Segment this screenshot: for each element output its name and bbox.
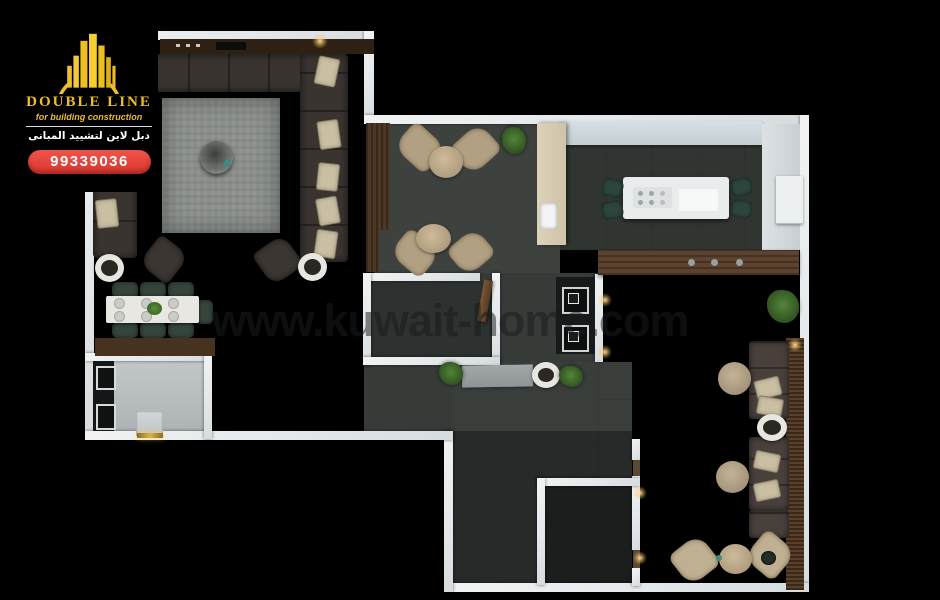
potted-plant [502, 127, 526, 154]
stove-top [633, 187, 672, 208]
entry-table [532, 362, 560, 388]
place-setting [168, 298, 179, 309]
pillow [95, 198, 120, 229]
burner-dots [638, 191, 643, 196]
sink [96, 366, 116, 390]
coffee-table [200, 141, 233, 174]
side-table [95, 254, 124, 282]
tv-console [160, 39, 374, 54]
lounge-table [416, 224, 451, 253]
wall [632, 439, 640, 460]
potted-plant [559, 366, 583, 387]
bar-stool [730, 198, 754, 219]
dining-chair [140, 322, 166, 338]
wall [204, 353, 212, 439]
dining-chair [168, 322, 194, 338]
wall [632, 568, 640, 586]
table-centerpiece [147, 302, 162, 315]
majlis-round-table [719, 544, 752, 574]
watermark-text: www.kuwait-home.com [200, 295, 700, 347]
wood-partition-low [366, 230, 379, 272]
ceiling-light [312, 33, 328, 49]
company-name: DOUBLE LINE [24, 94, 154, 111]
pouf [716, 461, 749, 493]
door-mat [137, 433, 163, 438]
window-counter [560, 121, 762, 145]
potted-plant [767, 290, 799, 323]
decor-bottle [224, 160, 231, 167]
side-table [298, 253, 327, 281]
logo-divider [26, 126, 152, 127]
wood-partition [366, 123, 390, 230]
counter-sink [540, 203, 557, 229]
place-setting [168, 311, 179, 322]
serving-tray [761, 551, 776, 565]
logo-panel: DOUBLE LINE for building construction دب… [24, 6, 154, 142]
hallway-shadow [215, 340, 364, 431]
company-tagline: for building construction [24, 112, 154, 122]
wall [537, 478, 545, 585]
company-name-arabic: دبل لاين لتشييد المبانى [24, 130, 154, 142]
place-setting [114, 311, 125, 322]
pillow [315, 195, 342, 226]
wall-light [633, 551, 647, 565]
potted-plant [439, 362, 463, 385]
building-skyline-icon [50, 22, 128, 94]
pouf [718, 362, 751, 395]
place-setting [114, 298, 125, 309]
lounge-table [429, 146, 463, 178]
sideboard [95, 338, 215, 356]
phone-badge: 99339036 [28, 150, 151, 174]
wall-light [788, 338, 802, 352]
divider-counter [598, 250, 799, 275]
wall [537, 478, 640, 486]
island-board [679, 189, 718, 211]
floor-mat [462, 364, 533, 387]
pillow [316, 119, 342, 151]
tv-screen [216, 42, 246, 50]
dining-chair [112, 322, 138, 338]
sink [96, 404, 116, 430]
sofa-side-table [757, 414, 787, 441]
decor-cup [716, 555, 722, 561]
pillow [316, 162, 341, 192]
fridge [776, 176, 803, 224]
wall-light [633, 486, 647, 500]
wall-light [598, 345, 612, 359]
wall [363, 357, 500, 365]
dining-table [106, 296, 199, 323]
inner-room-floor [545, 486, 632, 583]
door-threshold [633, 460, 640, 476]
counter-knobs [688, 259, 695, 266]
wall [444, 431, 453, 592]
wall [444, 583, 809, 592]
floorplan-render: www.kuwait-home.com DOUBLE LINE for buil… [0, 0, 940, 600]
console-decor [176, 44, 180, 47]
